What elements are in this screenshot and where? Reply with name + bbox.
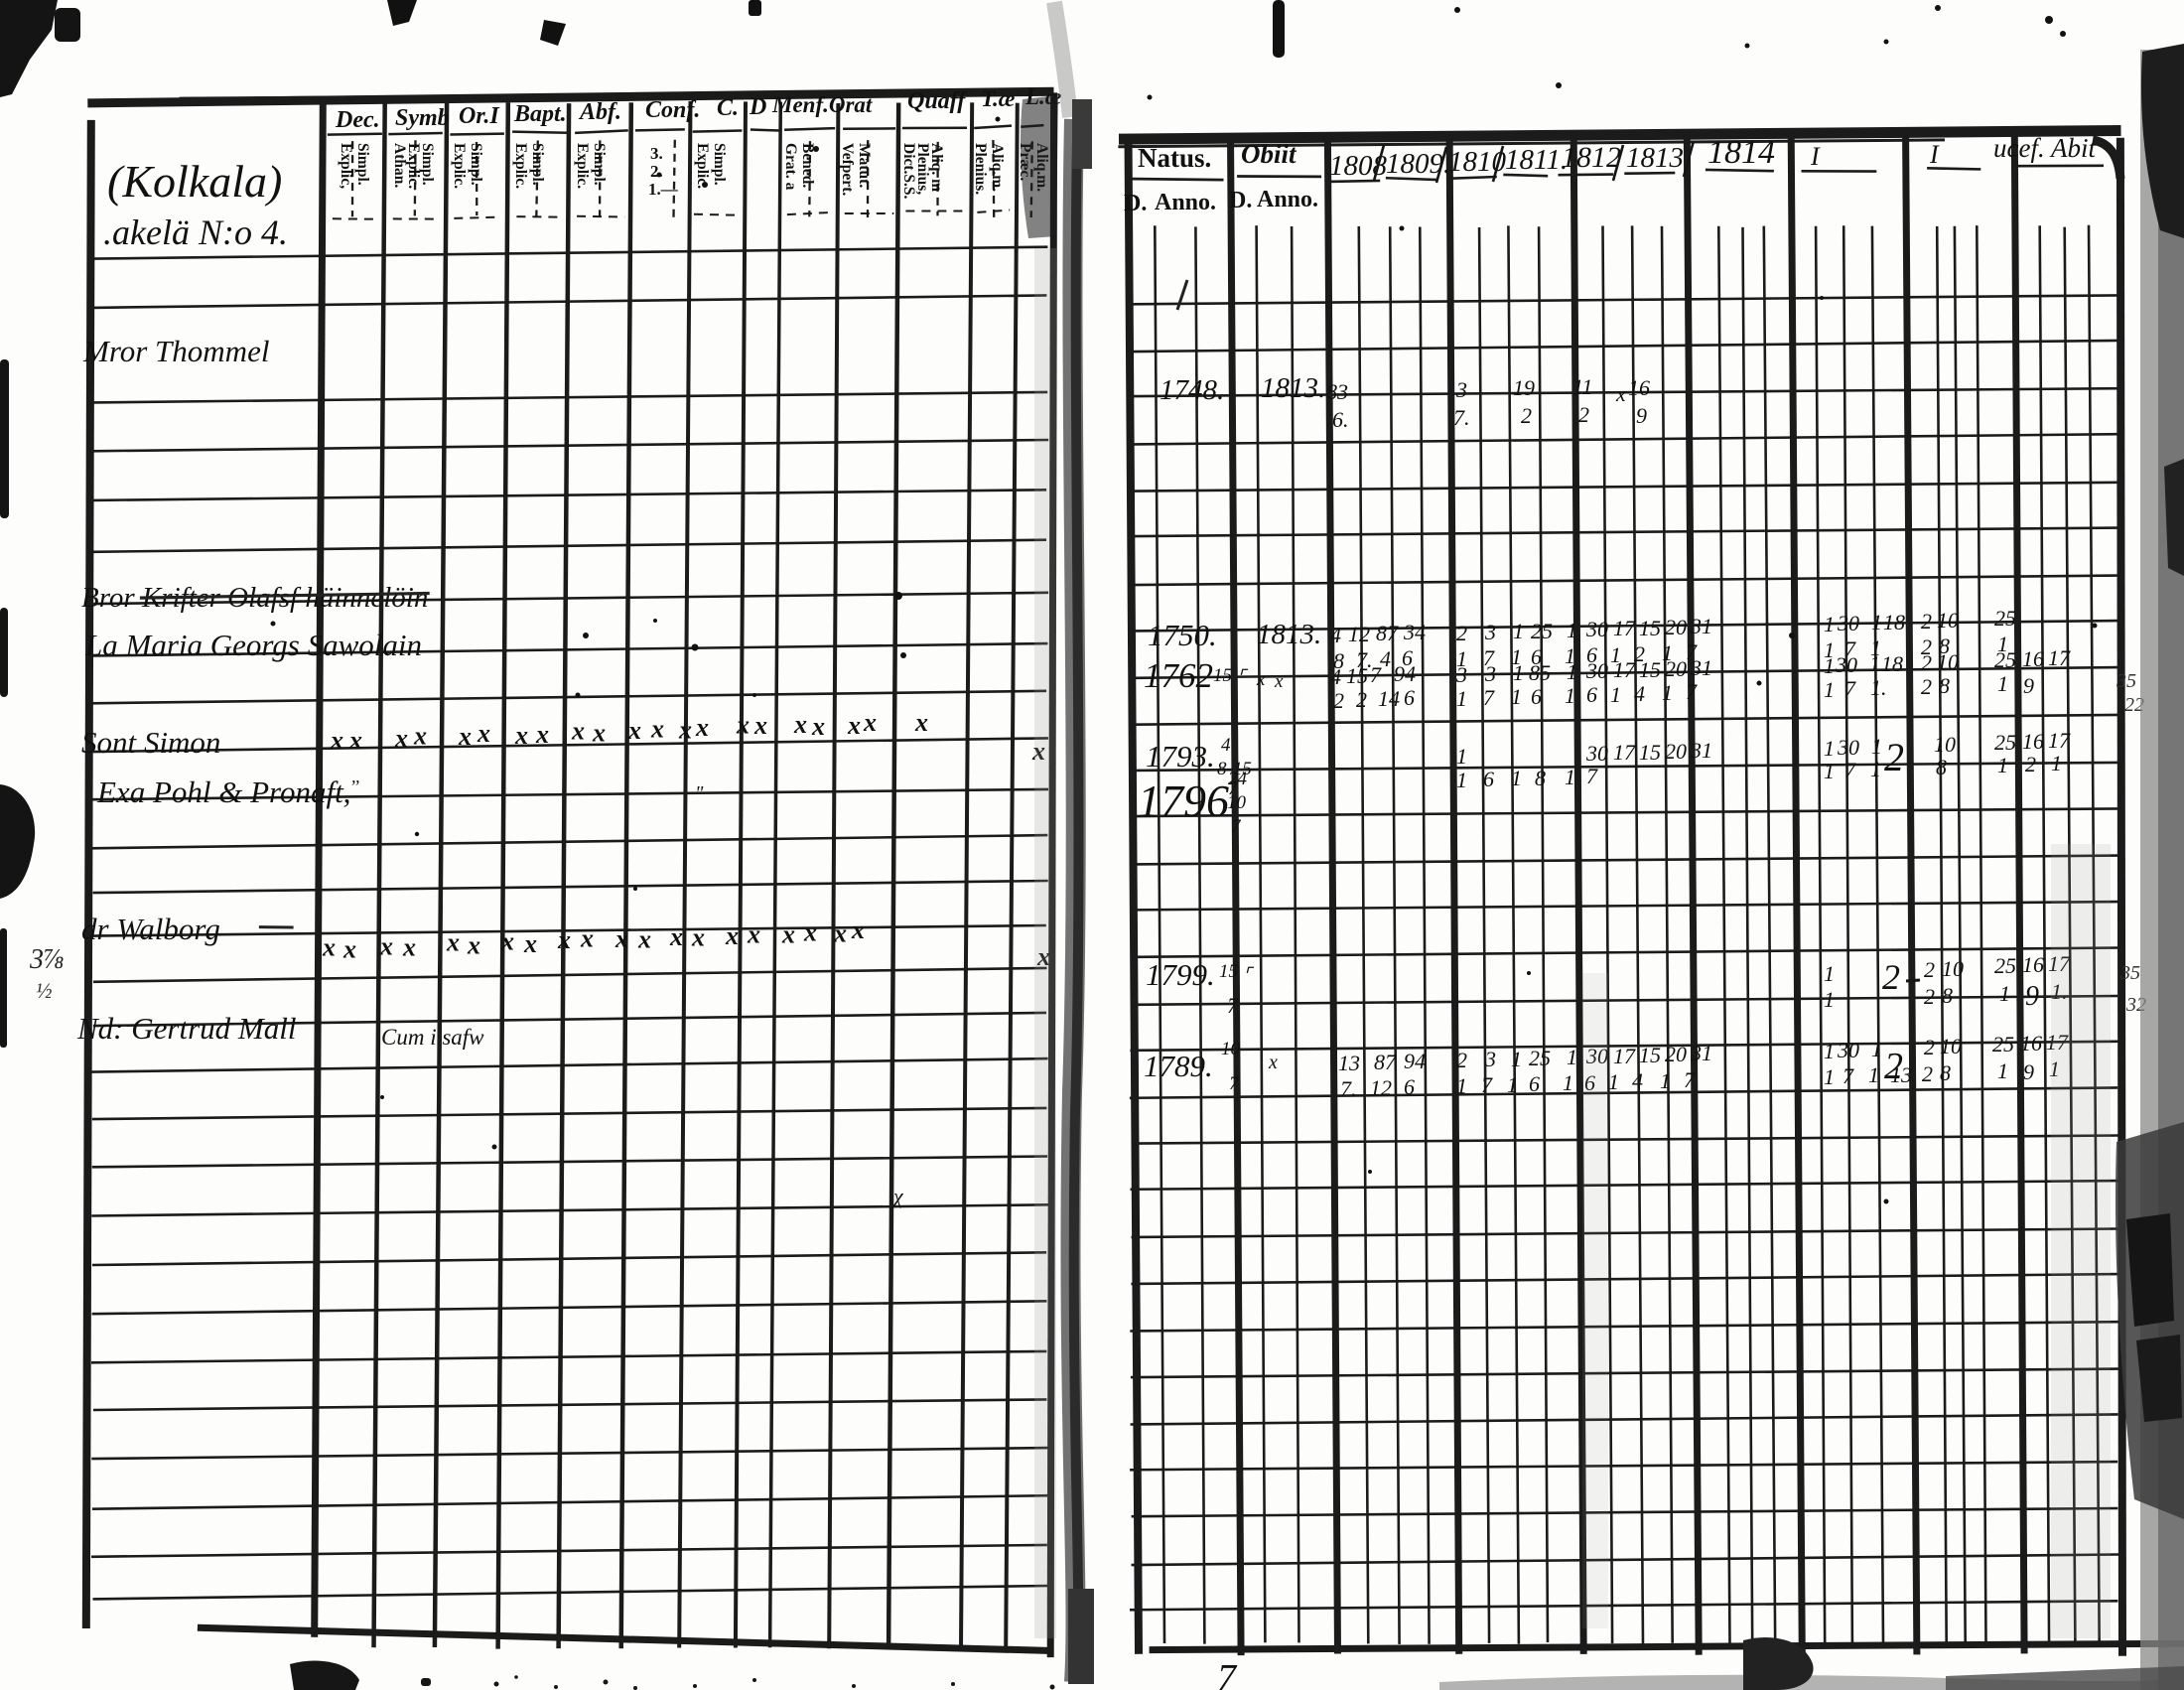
svg-text:31: 31	[1690, 614, 1712, 638]
svg-text:x: x	[781, 919, 795, 948]
svg-text:x: x	[394, 724, 408, 753]
svg-text:2: 2	[1882, 957, 1900, 997]
svg-text:7: 7	[1844, 758, 1856, 782]
svg-text:6.: 6.	[1332, 407, 1349, 432]
svg-text:4: 4	[1634, 681, 1645, 706]
svg-text:10: 10	[1227, 792, 1247, 813]
svg-text:16: 16	[2020, 1031, 2042, 1056]
svg-text:19: 19	[1513, 375, 1535, 400]
svg-text:Grat. a: Grat. a	[782, 143, 799, 191]
svg-text:35: 35	[2116, 670, 2136, 692]
svg-text:1: 1	[1660, 1068, 1671, 1093]
svg-text:4: 4	[1632, 1068, 1643, 1093]
svg-text:χ: χ	[891, 1184, 904, 1208]
svg-text:9: 9	[1636, 403, 1647, 428]
svg-text:Aliq. m: Aliq. m	[928, 143, 945, 192]
svg-text:25: 25	[1529, 1046, 1551, 1070]
svg-text:7: 7	[1229, 1073, 1240, 1094]
svg-text:4: 4	[1330, 623, 1341, 647]
svg-text:Simpl.: Simpl.	[529, 143, 546, 186]
svg-text:x: x	[592, 718, 606, 747]
svg-text:1812: 1812	[1562, 141, 1621, 174]
svg-text:x: x	[753, 711, 767, 740]
svg-text:1: 1	[1824, 1039, 1835, 1063]
svg-text:6: 6	[1531, 684, 1542, 709]
svg-text:x: x	[747, 920, 760, 949]
svg-text:1: 1	[1511, 766, 1522, 790]
svg-text:Simpl.: Simpl.	[591, 143, 608, 186]
svg-text:1: 1	[1565, 765, 1575, 789]
svg-text:1: 1	[1456, 744, 1467, 769]
svg-text:x: x	[863, 708, 877, 737]
svg-text:20: 20	[1665, 656, 1687, 681]
svg-text:x: x	[627, 716, 641, 745]
svg-text:Simpl.: Simpl.	[711, 143, 728, 186]
svg-text:85: 85	[1529, 660, 1551, 685]
svg-text:8: 8	[1936, 755, 1947, 779]
svg-text:25: 25	[1994, 730, 2016, 755]
svg-text:x: x	[847, 711, 861, 740]
svg-text:7: 7	[1684, 1067, 1696, 1092]
svg-text:16: 16	[2022, 646, 2044, 671]
svg-text:1748.: 1748.	[1160, 374, 1224, 406]
svg-text:Explic.: Explic.	[512, 143, 529, 189]
svg-text:1750.: 1750.	[1148, 618, 1217, 652]
svg-text:3: 3	[1484, 661, 1496, 686]
svg-text:25: 25	[1994, 647, 2016, 672]
svg-text:x: x	[1268, 1052, 1278, 1073]
svg-text:1: 1	[1513, 660, 1524, 685]
svg-text:7.: 7.	[1453, 405, 1470, 430]
svg-text:7: 7	[1481, 1072, 1493, 1097]
svg-text:1: 1	[1567, 659, 1577, 684]
svg-text:1: 1	[1456, 686, 1467, 711]
svg-text:6: 6	[1529, 1071, 1540, 1096]
svg-text:30: 30	[1835, 652, 1857, 677]
svg-text:14: 14	[1378, 686, 1400, 711]
svg-text:24: 24	[1228, 769, 1248, 789]
svg-text:1: 1	[1456, 1073, 1467, 1098]
svg-text:6: 6	[1404, 685, 1415, 710]
svg-text:30: 30	[1837, 735, 1859, 760]
svg-text:83: 83	[1326, 379, 1348, 404]
svg-text:x: x	[500, 926, 514, 955]
svg-text:87: 87	[1376, 621, 1399, 645]
svg-text:9: 9	[2025, 981, 2039, 1012]
svg-text:x: x	[914, 708, 928, 737]
svg-text:Mror Thommel: Mror Thommel	[82, 334, 269, 368]
svg-text:2: 2	[1924, 957, 1935, 982]
svg-text:Exa Pohl & Pronaft,: Exa Pohl & Pronaft,	[96, 775, 350, 809]
svg-text:9: 9	[2023, 1059, 2034, 1084]
svg-text:3: 3	[1455, 662, 1467, 687]
svg-text:1: 1	[1565, 683, 1575, 708]
svg-text:.akelä N:o 4.: .akelä N:o 4.	[103, 212, 288, 252]
svg-text:17: 17	[2048, 645, 2071, 670]
svg-text:x: x	[614, 924, 628, 953]
svg-text:x: x	[695, 713, 709, 742]
svg-text:Explic.: Explic.	[574, 143, 591, 189]
svg-text:2: 2	[1578, 402, 1589, 427]
svg-text:16: 16	[1628, 375, 1650, 400]
svg-text:Sont Simon: Sont Simon	[81, 725, 220, 760]
svg-text:6: 6	[1483, 767, 1494, 791]
svg-text:10: 10	[1937, 649, 1959, 674]
svg-text:2: 2	[1521, 403, 1532, 428]
svg-text:(Kolkala): (Kolkala)	[107, 156, 282, 207]
svg-text:13: 13	[1338, 1051, 1360, 1075]
svg-text:11: 11	[1572, 374, 1592, 399]
svg-text:2: 2	[1921, 650, 1932, 675]
svg-text:ucef. Abit: ucef. Abit	[1993, 133, 2097, 163]
svg-text:3: 3	[1455, 377, 1467, 402]
svg-text:4: 4	[1221, 735, 1231, 756]
svg-text:30: 30	[1585, 658, 1608, 683]
svg-text:Nd: Gertrud Mall: Nd: Gertrud Mall	[76, 1011, 296, 1046]
svg-text:1: 1	[1507, 1072, 1518, 1097]
svg-text:7: 7	[1686, 679, 1698, 704]
svg-text:C.: C.	[717, 95, 739, 121]
svg-text:D.: D.	[1124, 191, 1147, 216]
svg-text:17: 17	[1613, 1044, 1636, 1068]
svg-text:x: x	[557, 925, 571, 954]
svg-text:4: 4	[1380, 646, 1391, 671]
svg-text:1: 1	[1608, 1069, 1619, 1094]
svg-text:2: 2	[1456, 1048, 1467, 1072]
svg-text:Aliq.m.: Aliq.m.	[989, 143, 1006, 192]
svg-text:x: x	[650, 714, 664, 743]
svg-text:1793.: 1793.	[1146, 739, 1215, 774]
svg-text:1: 1	[1997, 753, 2008, 777]
svg-text:31: 31	[1690, 1041, 1712, 1065]
svg-text:15: 15	[1213, 665, 1232, 686]
svg-text:Anno.: Anno.	[1257, 187, 1318, 212]
svg-text:x: x	[446, 928, 460, 957]
svg-text:17: 17	[2048, 728, 2071, 753]
svg-text:25: 25	[1992, 1032, 2014, 1056]
svg-text:3.: 3.	[650, 144, 663, 163]
svg-text:12: 12	[1348, 622, 1370, 646]
svg-text:2: 2	[1924, 1035, 1935, 1059]
svg-text:7: 7	[1370, 662, 1382, 687]
svg-text:x: x	[811, 712, 825, 741]
svg-text:25: 25	[1531, 619, 1553, 643]
svg-text:Explic.: Explic.	[694, 143, 711, 189]
svg-text:T.æ: T.æ	[981, 86, 1016, 111]
svg-text:1: 1	[2051, 751, 2062, 775]
svg-text:I: I	[1929, 140, 1940, 169]
svg-text:31: 31	[1690, 738, 1712, 763]
svg-text:x: x	[580, 924, 594, 953]
svg-text:x: x	[725, 921, 739, 950]
svg-text:1: 1	[1824, 961, 1835, 986]
svg-text:17: 17	[1613, 740, 1636, 765]
svg-text:1: 1	[1567, 618, 1577, 642]
svg-text:x: x	[736, 711, 750, 740]
svg-text:20: 20	[1665, 739, 1687, 764]
svg-text:1: 1	[1610, 682, 1621, 707]
svg-text:2: 2	[1921, 609, 1932, 634]
svg-text:½: ½	[36, 978, 53, 1003]
svg-text:2: 2	[1884, 735, 1904, 779]
svg-text:1: 1	[1824, 736, 1835, 761]
svg-text:18: 18	[1883, 610, 1905, 634]
svg-text:35: 35	[2119, 962, 2140, 984]
svg-text:1: 1	[1824, 653, 1835, 678]
svg-text:x: x	[458, 722, 472, 751]
svg-text:94: 94	[1394, 661, 1416, 686]
svg-text:7: 7	[1217, 1657, 1238, 1690]
svg-text:1: 1	[1824, 1064, 1835, 1089]
svg-text:15: 15	[1346, 663, 1368, 688]
svg-text:Explic,: Explic,	[338, 143, 354, 189]
svg-text:Vefpert.: Vefpert.	[839, 143, 856, 196]
svg-text:Matut.: Matut.	[856, 143, 873, 188]
svg-text:1789.: 1789.	[1144, 1049, 1213, 1083]
svg-text:15: 15	[1639, 740, 1661, 765]
svg-text:1: 1	[1456, 768, 1467, 792]
svg-text:18: 18	[1881, 651, 1903, 676]
svg-text:1799.: 1799.	[1146, 957, 1215, 992]
svg-text:1: 1	[1824, 612, 1835, 636]
svg-text:1: 1	[1869, 651, 1880, 676]
svg-text:7: 7	[1227, 993, 1239, 1018]
svg-text:10: 10	[1221, 1039, 1241, 1059]
svg-text:x: x	[691, 922, 705, 951]
svg-text:15: 15	[1639, 1043, 1661, 1067]
svg-text:x: x	[535, 720, 549, 749]
svg-text:1: 1	[1999, 981, 2010, 1006]
svg-text:1796: 1796	[1138, 775, 1229, 826]
svg-text:8: 8	[1942, 983, 1953, 1008]
svg-text:2: 2	[2025, 752, 2036, 776]
svg-text:Or.I: Or.I	[459, 103, 500, 129]
svg-text:Quaff: Quaff	[907, 88, 967, 114]
svg-text:8: 8	[1940, 1060, 1951, 1085]
svg-text:1814: 1814	[1707, 134, 1775, 171]
svg-text:34: 34	[1403, 620, 1426, 644]
svg-text:x: x	[523, 929, 537, 958]
svg-text:1762: 1762	[1144, 656, 1213, 695]
svg-text:Dec.: Dec.	[335, 107, 380, 133]
svg-text:x: x	[330, 726, 343, 755]
svg-text:Cum i safw: Cum i safw	[381, 1025, 484, 1050]
svg-text:x: x	[348, 726, 362, 755]
svg-text:1: 1	[1511, 684, 1522, 709]
svg-text:I: I	[1810, 142, 1821, 171]
svg-text:La Maria Georgs Sawolain: La Maria Georgs Sawolain	[84, 628, 422, 662]
svg-text:17: 17	[1613, 657, 1636, 682]
svg-text:16: 16	[2022, 952, 2044, 977]
svg-text:7: 7	[1231, 816, 1242, 837]
svg-text:6: 6	[1404, 1074, 1415, 1099]
svg-text:3: 3	[1484, 620, 1496, 644]
svg-text:15: 15	[1639, 616, 1661, 640]
svg-text:1: 1	[1997, 1058, 2008, 1083]
svg-text:3⅞: 3⅞	[29, 944, 65, 975]
svg-text:": "	[695, 782, 704, 804]
svg-text:x: x	[833, 918, 847, 947]
svg-text:x: x	[322, 933, 336, 962]
svg-text:Natus.: Natus.	[1138, 143, 1211, 173]
svg-text:1: 1	[1824, 759, 1835, 783]
svg-text:30: 30	[1585, 617, 1608, 641]
svg-text:x: x	[1615, 381, 1626, 406]
svg-text:1: 1	[1868, 1062, 1879, 1087]
svg-text:10: 10	[1937, 608, 1959, 633]
svg-text:7: 7	[1586, 764, 1598, 788]
svg-text:x: x	[514, 721, 528, 750]
svg-text:17: 17	[1613, 616, 1636, 640]
svg-text:Bapt.: Bapt.	[513, 101, 567, 127]
svg-text:2: 2	[1922, 1061, 1933, 1086]
svg-text:6: 6	[1586, 682, 1597, 707]
svg-text:1813.: 1813.	[1257, 619, 1321, 650]
svg-text:x: x	[803, 917, 817, 946]
svg-text:2.: 2.	[650, 162, 663, 181]
svg-text:1: 1	[1511, 1047, 1522, 1071]
svg-text:Obiit: Obiit	[1241, 139, 1297, 169]
svg-text:2: 2	[1921, 674, 1932, 699]
svg-text:x: x	[571, 717, 585, 746]
svg-text:x: x	[669, 922, 683, 951]
svg-text:x: x	[413, 721, 427, 750]
svg-text:15: 15	[1219, 961, 1238, 982]
svg-text:2: 2	[1924, 984, 1935, 1009]
svg-text:1.—: 1.—	[648, 180, 679, 199]
svg-text:1: 1	[1870, 757, 1881, 781]
svg-text:Abf.: Abf.	[578, 99, 621, 125]
svg-text:1: 1	[1662, 680, 1673, 705]
svg-text:3: 3	[1484, 1047, 1496, 1071]
svg-text:x: x	[402, 932, 416, 961]
svg-text:25: 25	[1994, 953, 2016, 978]
svg-text:15: 15	[1639, 657, 1661, 682]
svg-text:7: 7	[1483, 685, 1495, 710]
svg-text:Explic.: Explic.	[451, 143, 468, 189]
svg-text:1: 1	[1997, 671, 2008, 696]
svg-text:1813: 1813	[1626, 142, 1684, 174]
svg-text:7.: 7.	[1340, 1076, 1357, 1101]
svg-text:Plenius.: Plenius.	[972, 143, 989, 195]
svg-text:25: 25	[1994, 606, 2016, 631]
svg-text:Simpl.: Simpl.	[354, 143, 371, 186]
svg-text:dr Walborg: dr Walborg	[81, 912, 220, 946]
svg-text:10: 10	[1940, 1034, 1962, 1058]
svg-text:Anno.: Anno.	[1155, 190, 1216, 215]
svg-text:20: 20	[1665, 1042, 1687, 1066]
svg-text:x: x	[379, 931, 393, 960]
svg-text:D: D	[749, 94, 766, 120]
svg-text:16: 16	[2022, 729, 2044, 754]
svg-text:1.: 1.	[1870, 675, 1887, 700]
svg-text:2: 2	[1456, 621, 1467, 645]
svg-text:x: x	[1274, 671, 1284, 692]
svg-text:2: 2	[1333, 688, 1344, 713]
svg-text:31: 31	[1690, 655, 1712, 680]
svg-text:1: 1	[1871, 1037, 1882, 1061]
svg-text:x: x	[477, 719, 490, 748]
svg-text:1: 1	[1824, 677, 1835, 702]
svg-text:x: x	[467, 931, 480, 960]
svg-text:10: 10	[1934, 732, 1956, 757]
svg-text:30: 30	[1837, 1038, 1859, 1062]
svg-text:D.: D.	[1229, 188, 1252, 213]
svg-text:7: 7	[1844, 676, 1856, 701]
svg-text:1: 1	[1563, 1070, 1573, 1095]
svg-text:20: 20	[1665, 615, 1687, 639]
svg-text:1: 1	[1513, 619, 1524, 643]
svg-text:1: 1	[1871, 734, 1882, 759]
svg-text:x: x	[637, 924, 651, 953]
svg-text:30: 30	[1585, 741, 1608, 766]
svg-text:13: 13	[1890, 1062, 1912, 1087]
svg-text:87: 87	[1374, 1050, 1397, 1074]
svg-text:x: x	[342, 934, 356, 963]
svg-text:Bror Krifter Olafsf häinnelöi: Bror Krifter Olafsf häinnelöin	[81, 582, 428, 614]
svg-text:x: x	[851, 915, 865, 944]
svg-text:1: 1	[1567, 1045, 1577, 1069]
svg-text:’’: ’’	[349, 776, 359, 796]
svg-text:x: x	[678, 716, 692, 745]
svg-text:1811.: 1811.	[1505, 144, 1568, 176]
svg-text:Symb: Symb	[395, 105, 450, 131]
svg-text:9: 9	[2023, 673, 2034, 698]
svg-text:1: 1	[1824, 987, 1835, 1012]
svg-text:8: 8	[1939, 673, 1950, 698]
svg-text:12: 12	[1370, 1075, 1392, 1100]
svg-text:Menf.Orat: Menf.Orat	[771, 92, 873, 117]
svg-text:Conf.: Conf.	[645, 97, 700, 123]
svg-text:Simpl.: Simpl.	[419, 143, 436, 186]
svg-text:94: 94	[1404, 1049, 1426, 1073]
svg-text:1813.: 1813.	[1261, 372, 1325, 404]
svg-text:x: x	[1256, 669, 1266, 690]
svg-text:30: 30	[1837, 611, 1859, 635]
svg-text:4: 4	[1330, 664, 1341, 689]
svg-text:7: 7	[1843, 1063, 1854, 1088]
svg-text:x: x	[793, 710, 807, 739]
svg-text:10: 10	[1942, 956, 1964, 981]
svg-text:8: 8	[1535, 766, 1546, 790]
svg-text:2: 2	[1356, 687, 1367, 712]
svg-text:Simpl.: Simpl.	[468, 143, 484, 186]
svg-text:1: 1	[1871, 610, 1882, 634]
